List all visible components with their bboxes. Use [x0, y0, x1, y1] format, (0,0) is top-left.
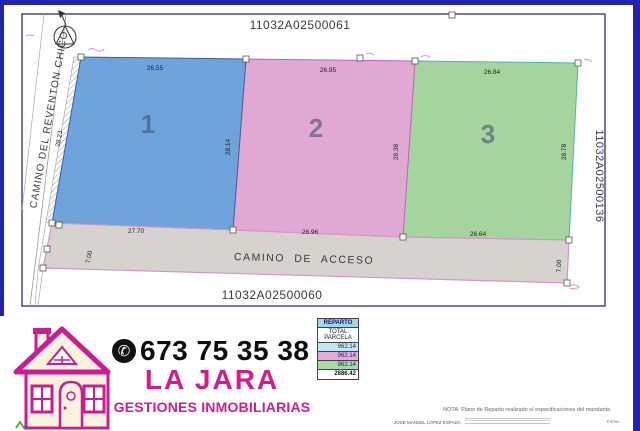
parcel-2-shape	[233, 59, 415, 237]
dim-p1-bottom: 27.70	[128, 228, 145, 235]
dim-road-right: 7.00	[556, 259, 563, 272]
house-window-right	[84, 386, 104, 412]
fine-print-name: JOSE MANUEL LOPEZ ESPADA	[394, 420, 461, 425]
ref-top: 11032A02500061	[250, 18, 351, 32]
house-door	[60, 382, 82, 428]
dim-p1-top: 26.55	[147, 65, 164, 72]
house-logo-icon	[12, 320, 112, 430]
house-window-left	[32, 386, 52, 412]
parcel-2-number: 2	[309, 113, 323, 143]
reparto-row-parcel-3: 962.14	[318, 361, 358, 370]
reparto-table: REPARTO TOTAL PARCELA 962.14 962.14 962.…	[317, 318, 359, 380]
dim-p2-top: 26.95	[320, 67, 337, 74]
dim-p2-bottom: 26.96	[302, 229, 319, 236]
dim-p2-right: 28.38	[393, 143, 400, 160]
fine-print-signature-label: Firma:	[607, 419, 620, 424]
parcel-3-shape	[403, 61, 578, 240]
dim-p1-right: 28.14	[225, 138, 232, 155]
phone-number: 673 75 35 38	[140, 335, 310, 367]
phone-row: ✆ 673 75 35 38	[112, 335, 322, 367]
dim-p3-top: 26.84	[484, 69, 501, 76]
reparto-total: 2886.42	[318, 370, 358, 379]
dim-p3-bottom: 26.64	[470, 231, 487, 238]
ref-bottom: 11032A02500060	[222, 288, 323, 302]
parcel-1-shape	[52, 57, 246, 230]
plan-note: NOTA: Plano de Reparto realizado s/ espe…	[435, 407, 620, 413]
reparto-row-parcel-1: 962.14	[318, 343, 358, 352]
reparto-subtitle: TOTAL PARCELA	[318, 328, 358, 343]
parcel-1-number: 1	[141, 109, 155, 139]
reparto-row-parcel-2: 962.14	[318, 352, 358, 361]
brand-name: LA JARA	[112, 364, 312, 396]
road-edge-extension-2	[38, 268, 43, 306]
parcel-3-number: 3	[481, 119, 495, 149]
reparto-title: REPARTO	[318, 319, 358, 328]
dim-p3-right: 28.78	[561, 143, 568, 160]
cadastral-plan: 1 2 3 11032A02500061 11032A02500060 1103…	[0, 0, 640, 320]
fine-print-smudge	[465, 417, 550, 425]
brand-tagline: GESTIONES INMOBILIARIAS	[106, 399, 318, 415]
phone-icon: ✆	[112, 339, 136, 363]
ref-right: 11032A02500136	[593, 129, 605, 222]
